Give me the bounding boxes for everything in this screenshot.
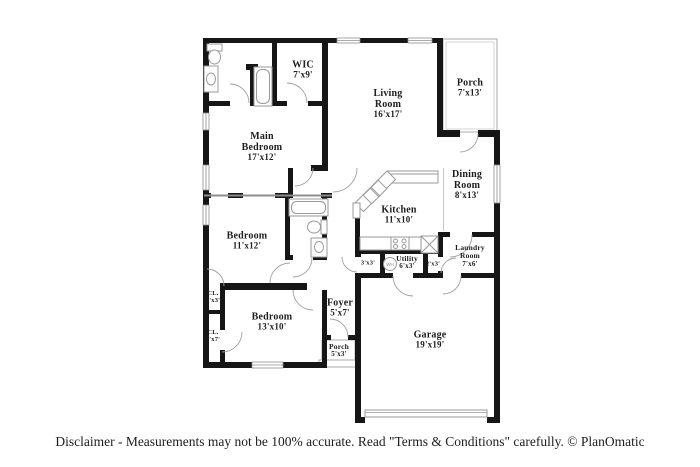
room-label-bedroom-3: Bedroom13'x10': [252, 312, 293, 333]
room-label-porch-front: Porch5'x3': [329, 343, 349, 359]
room-label-main-bedroom: MainBedroom17'x12': [242, 131, 283, 163]
room-label-closet-1: CL.3'x3': [206, 290, 220, 304]
floor-plan-page: WH WIC7'x9'LivingRoom16'x17'Porch7'x13'M…: [0, 0, 700, 467]
room-label-garage: Garage19'x19': [414, 330, 447, 351]
plan-svg: WH: [0, 0, 700, 467]
bathtub-1: [254, 67, 272, 106]
toilet-2: [308, 220, 328, 234]
bathtub-2: [289, 199, 328, 216]
water-heater: WH: [384, 258, 397, 271]
refrigerator: [421, 236, 438, 253]
room-label-closet-2: CL.3'x7': [206, 329, 220, 343]
room-label-utility: Utility6'x3': [396, 255, 418, 271]
garage-door: [365, 410, 487, 417]
toilet-1: [207, 44, 222, 64]
room-label-wic: WIC7'x9': [292, 60, 314, 81]
disclaimer-text: Disclaimer - Measurements may not be 100…: [0, 434, 700, 450]
room-label-dining-room: DiningRoom8'x13': [452, 169, 482, 201]
room-label-porch-top: Porch7'x13': [457, 78, 483, 99]
stove: [360, 237, 423, 250]
svg-text:WH: WH: [386, 262, 394, 267]
room-label-foyer: Foyer5'x7': [327, 298, 353, 319]
floor-plan: WH WIC7'x9'LivingRoom16'x17'Porch7'x13'M…: [0, 0, 700, 467]
room-label-bedroom-2: Bedroom11'x12': [227, 231, 268, 252]
sink-vanity-2: [311, 238, 327, 257]
room-label-closet-hall: 3'x3': [361, 259, 375, 266]
sink-vanity-1: [204, 66, 218, 92]
room-label-living-room: LivingRoom16'x17': [374, 88, 403, 120]
room-label-closet-2x3: 2'x3': [426, 260, 440, 267]
room-label-kitchen: Kitchen11'x10': [381, 205, 416, 226]
room-label-laundry-room: LaundryRoom7'x6': [455, 244, 485, 268]
windows: [203, 38, 500, 368]
